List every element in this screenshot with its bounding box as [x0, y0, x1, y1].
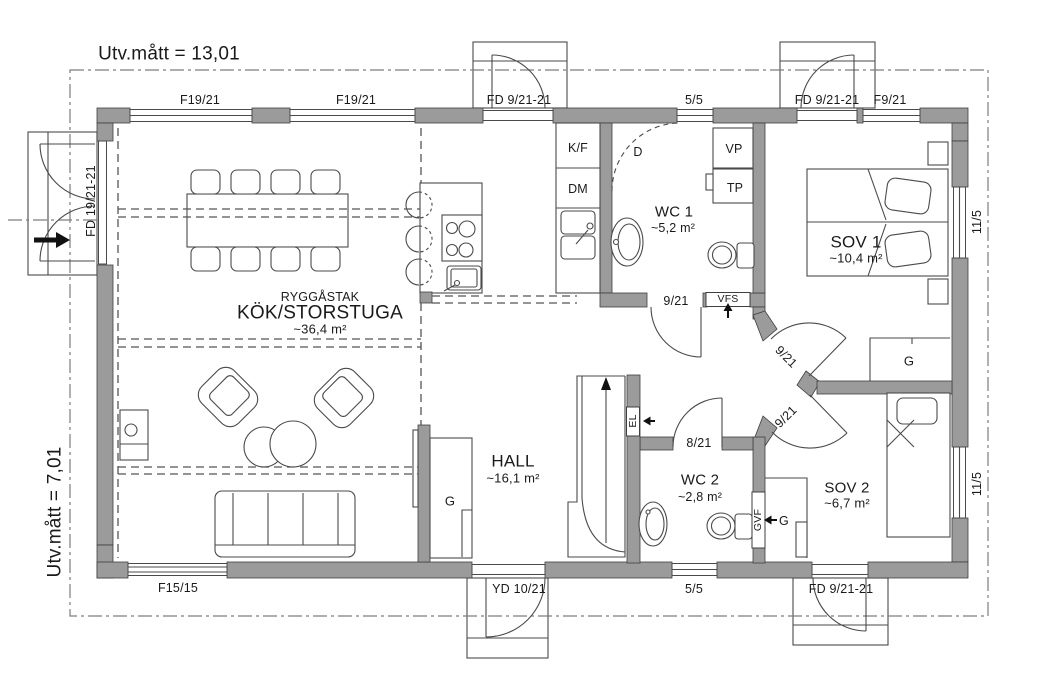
vfs-label: VFS — [717, 294, 738, 305]
door-label-wc1: 9/21 — [663, 295, 688, 308]
dining-set — [187, 170, 348, 271]
wc1-area: ~5,2 m² — [651, 222, 695, 235]
hall-area: ~16,1 m² — [486, 472, 539, 485]
outer-height-label: Utv.mått = 7,01 — [46, 447, 65, 578]
sov2-name: SOV 2 — [824, 481, 869, 496]
sov1-area: ~10,4 m² — [829, 252, 882, 265]
nightstand — [928, 279, 948, 304]
nightstand — [928, 142, 948, 165]
toilet-tank — [737, 243, 754, 268]
window-label-bottom-5-5: 5/5 — [685, 583, 703, 596]
closets — [413, 338, 950, 558]
window-label-f9-21: F9/21 — [874, 94, 907, 107]
kitchen-note: RYGGÅSTAK — [281, 291, 359, 304]
window-label-sov1-11-5: 11/5 — [971, 210, 984, 234]
wc1-name: WC 1 — [655, 205, 693, 220]
faucet — [587, 223, 593, 229]
dining-table — [187, 194, 348, 247]
armchair — [309, 363, 378, 432]
vp-label: VP — [725, 143, 742, 156]
bedroom-furniture — [807, 142, 950, 537]
window-label-sov2-11-5: 11/5 — [971, 472, 984, 496]
door-label-front: FD 19/21-21 — [85, 165, 98, 237]
pillow — [897, 398, 937, 424]
door-label-wc2: 8/21 — [686, 437, 711, 450]
sov1-name: SOV 1 — [830, 234, 881, 251]
pillow — [884, 177, 932, 215]
sov2-area: ~6,7 m² — [824, 497, 870, 510]
door-label-sov1-patio: FD 9/21-21 — [795, 94, 860, 107]
coffee-table — [270, 421, 316, 467]
living-room-furniture — [120, 362, 379, 557]
armchair — [193, 362, 262, 431]
shower-screen — [612, 123, 680, 191]
wardrobe-label-sov2: G — [779, 515, 789, 528]
fridge-freezer-label: K/F — [568, 142, 588, 155]
wc2-fixtures — [639, 502, 752, 546]
window-label-f19-21-a: F19/21 — [180, 94, 220, 107]
wc2-area: ~2,8 m² — [678, 491, 722, 504]
el-label: EL — [628, 414, 639, 427]
kitchen-area: ~36,4 m² — [293, 323, 346, 336]
pillow — [884, 230, 932, 268]
floor-plan: Utv.mått = 13,01 Utv.mått = 7,01 F19/21 … — [0, 0, 1044, 696]
dishwasher-label: DM — [568, 183, 588, 196]
door-label-yard: YD 10/21 — [492, 583, 546, 596]
outer-width-label: Utv.mått = 13,01 — [98, 45, 240, 64]
window-label-f19-21-b: F19/21 — [336, 94, 376, 107]
door-label-sov2-patio: FD 9/21-21 — [809, 583, 874, 596]
toilet-tank — [735, 514, 752, 539]
gvf-label: GVF — [753, 509, 764, 531]
arrows — [34, 232, 777, 525]
window-label-f15-15: F15/15 — [158, 582, 198, 595]
stairs — [568, 376, 625, 557]
door-label-top-patio: FD 9/21-21 — [487, 94, 552, 107]
shower-label: D — [633, 146, 642, 159]
wc2-name: WC 2 — [681, 473, 719, 488]
wardrobe-label-hall: G — [445, 495, 455, 508]
window-label-top-5-5: 5/5 — [685, 94, 703, 107]
wardrobe-label-sov1: G — [904, 355, 914, 368]
sofa — [215, 491, 355, 557]
kitchen-name: KÖK/STORSTUGA — [237, 304, 403, 323]
hall-name: HALL — [491, 453, 534, 470]
tp-label: TP — [727, 182, 743, 195]
